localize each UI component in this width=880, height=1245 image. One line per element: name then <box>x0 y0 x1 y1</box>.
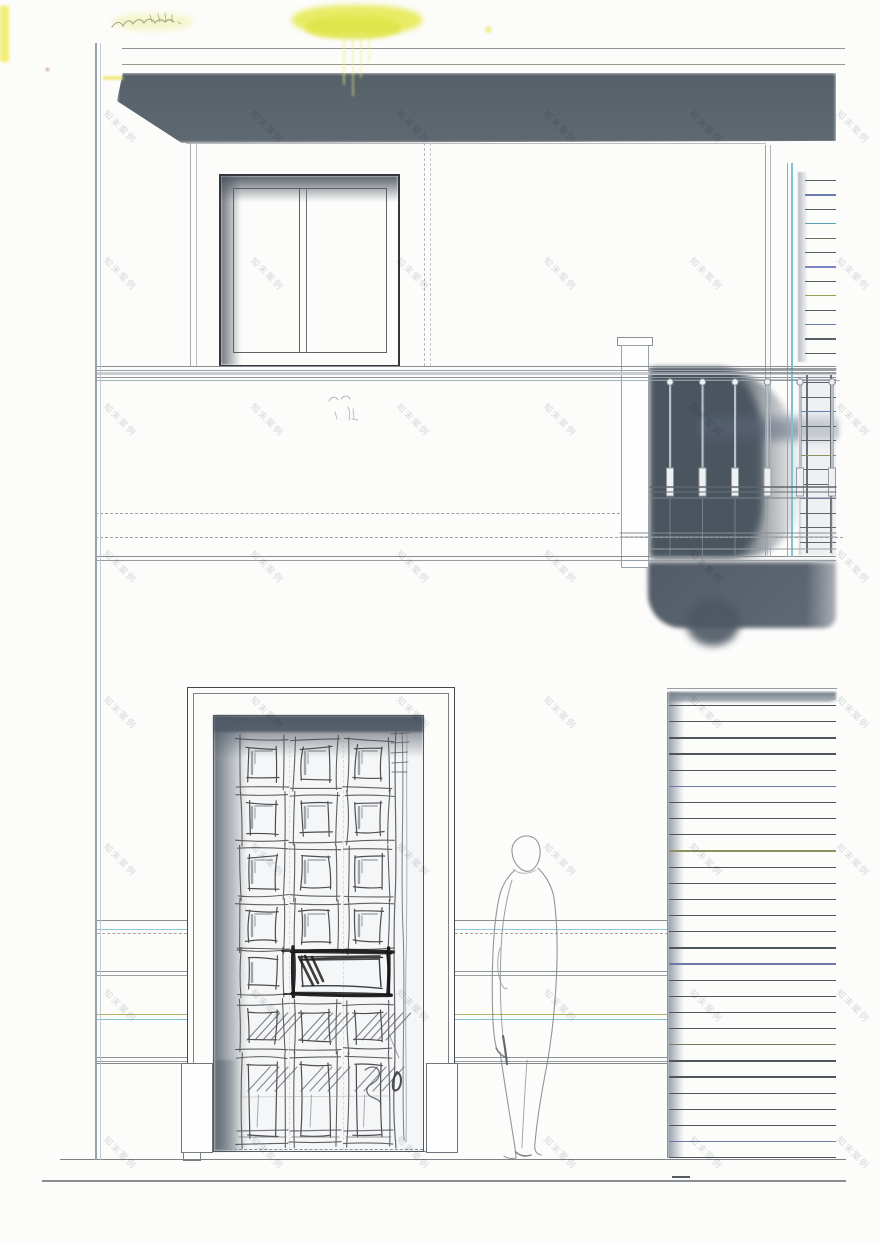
balcony-top-2 <box>95 370 836 371</box>
string-course <box>97 975 187 976</box>
rolling-shutter-slats-slat <box>669 980 836 981</box>
rolling-shutter-slats-slat <box>669 1012 836 1013</box>
louver-shutter-lower-slat <box>800 382 836 383</box>
rolling-shutter-slats-slat <box>669 931 836 932</box>
pilaster-right-2 <box>430 143 431 366</box>
watermark-text: 知末案例 <box>833 254 872 293</box>
rolling-shutter-slats-slat <box>669 899 836 900</box>
rolling-shutter-slats-slat <box>669 1109 836 1110</box>
pilaster-left-2 <box>196 143 197 366</box>
watermark-text: 知末案例 <box>101 400 140 439</box>
balcony-top-4 <box>95 380 840 381</box>
string-course-cyan <box>455 929 668 930</box>
louver-shutter-lower-slat <box>800 527 836 528</box>
watermark-text: 知末案例 <box>247 547 286 586</box>
figure-foot <box>516 1152 531 1156</box>
watermark-text: 知末案例 <box>247 400 286 439</box>
pilaster-right-1 <box>424 143 425 366</box>
under-balcony-fade <box>806 562 840 632</box>
figure-elbow <box>498 948 507 989</box>
rolling-shutter-slats-slat <box>669 705 836 706</box>
rolling-shutter-slats-slat <box>669 1157 836 1158</box>
wall-scribble-1 <box>329 396 350 401</box>
watermark-text: 知末案例 <box>101 840 140 879</box>
louver-shutter-upper-slat <box>805 310 836 311</box>
rolling-shutter-slats-slat <box>669 850 836 851</box>
facade-left-edge-2 <box>100 43 101 1160</box>
watermark-text: 知末案例 <box>540 1133 579 1172</box>
watermark-text: 知末案例 <box>101 107 140 146</box>
slab-bottom-1 <box>95 556 836 557</box>
figure-inner-arm <box>500 880 512 1060</box>
rolling-shutter-slats-slat <box>669 1141 836 1142</box>
red-speck <box>46 68 49 71</box>
rolling-shutter-slats-slat <box>669 786 836 787</box>
figure-left-side <box>492 870 515 1052</box>
pilaster-left-1 <box>190 143 191 366</box>
figure-hand-dark <box>503 1036 507 1064</box>
roof-line-2 <box>122 64 845 65</box>
watermark-text: 知末案例 <box>687 1133 726 1172</box>
ground-dash-dark <box>672 1176 690 1178</box>
louver-shutter-upper-slat <box>805 209 836 210</box>
balcony-top-1 <box>95 366 836 367</box>
balcony-recess-main <box>651 369 803 557</box>
string-course <box>455 971 668 972</box>
rolling-shutter-slats-slat <box>669 1125 836 1126</box>
cornice-band <box>117 73 836 143</box>
balcony-top-3 <box>95 377 836 378</box>
highlighter-streak <box>368 28 370 62</box>
balcony-top-band <box>95 372 836 375</box>
wall-corner-right-2 <box>770 145 771 557</box>
slab-bottom-2 <box>95 560 836 561</box>
watermark-text: 知末案例 <box>540 547 579 586</box>
watermark-text: 知末案例 <box>687 986 726 1025</box>
louver-shutter-lower-slat <box>800 542 836 543</box>
louver-shutter-upper-slat <box>805 338 836 339</box>
rolling-shutter-slats-slat <box>669 818 836 819</box>
louver-shutter-lower-slat <box>800 455 836 456</box>
louver-shutter-upper-slat <box>805 252 836 253</box>
rolling-shutter-slats-slat <box>669 834 836 835</box>
rolling-shutter-slats-slat <box>669 963 836 964</box>
figure-left-leg <box>500 1052 516 1158</box>
louver-shutter-upper-slat <box>805 353 836 354</box>
highlighter-streak <box>360 30 362 78</box>
under-balcony-bulge <box>686 598 740 646</box>
string-course-dash <box>455 933 668 934</box>
louver-shutter-lower-slat <box>800 440 836 441</box>
highlighter-streak <box>343 30 345 85</box>
watermark-text: 知末案例 <box>394 400 433 439</box>
shutter-left-frame <box>667 692 668 1158</box>
rolling-shutter-slats-slat <box>669 1044 836 1045</box>
pillar-shaft <box>621 345 649 568</box>
door-opening <box>213 715 424 1152</box>
watermark-text: 知末案例 <box>687 254 726 293</box>
facade-left-edge <box>95 43 97 1160</box>
wall-scribble-2 <box>335 407 358 420</box>
rolling-shutter-slats-slat <box>669 1076 836 1077</box>
louver-shutter-upper-slat <box>805 180 836 181</box>
string-course-cyan <box>97 929 187 930</box>
louver-shutter-upper-slat <box>805 194 836 195</box>
figure-inner-leg <box>522 1060 527 1148</box>
louver-shutter-upper-slat <box>805 324 836 325</box>
shutter-top-shade <box>669 692 836 702</box>
door-threshold-dash <box>214 1149 423 1150</box>
window-mullion-1 <box>299 188 300 353</box>
highlighter-tick <box>103 76 123 80</box>
shutter-top-line <box>667 688 837 689</box>
highlighter-dot <box>485 26 492 33</box>
string-course <box>455 1057 668 1058</box>
door-plinth-right <box>426 1063 458 1153</box>
louver-shutter-lower-slat <box>800 426 836 427</box>
rolling-shutter-slats-slat <box>669 1093 836 1094</box>
string-course-cyan <box>97 1019 187 1020</box>
louver-shutter-lower-slat <box>800 411 836 412</box>
figure-hand-dark-2 <box>496 1048 505 1057</box>
rolling-shutter-slats-slat <box>669 802 836 803</box>
highlighter-scribble-wash <box>112 13 194 31</box>
string-course-olive <box>97 1014 187 1015</box>
string-course <box>97 920 187 921</box>
watermark-text: 知末案例 <box>540 693 579 732</box>
hidden-slab-line-2 <box>95 537 843 538</box>
plinth-top <box>97 1063 182 1064</box>
downpipe-line-cyan <box>791 163 793 557</box>
watermark-text: 知末案例 <box>540 840 579 879</box>
downpipe-line <box>787 163 788 557</box>
string-course <box>97 971 187 972</box>
watermark-text: 知末案例 <box>101 1133 140 1172</box>
door-plinth-left <box>181 1063 213 1153</box>
figure-right-side <box>535 868 557 1155</box>
louver-shutter-lower-slat <box>800 469 836 470</box>
rolling-shutter-slats-slat <box>669 753 836 754</box>
rolling-shutter-slats-slat <box>669 996 836 997</box>
louver-shutter-lower-slat <box>800 397 836 398</box>
string-course-olive <box>455 1014 668 1015</box>
window-sash-frame <box>233 188 387 353</box>
watermark-text: 知末案例 <box>833 107 872 146</box>
watermark-text: 知末案例 <box>540 254 579 293</box>
rolling-shutter-slats-slat <box>669 947 836 948</box>
louver-shutter-lower-slat <box>800 484 836 485</box>
string-course-cyan <box>455 1019 668 1020</box>
rolling-shutter-slats-slat <box>669 721 836 722</box>
figure-shoulder <box>513 869 536 873</box>
window-mullion-2 <box>306 188 307 353</box>
rolling-shutter-slats-slat <box>669 867 836 868</box>
string-course <box>97 1057 187 1058</box>
rolling-shutter-slats-slat <box>669 915 836 916</box>
shutter-left-shade <box>668 692 684 1158</box>
plinth-top <box>458 1063 668 1064</box>
watermark-text: 知末案例 <box>833 400 872 439</box>
watermark-text: 知末案例 <box>101 254 140 293</box>
rolling-shutter-slats-slat <box>669 1060 836 1061</box>
soffit-line <box>186 143 766 144</box>
rolling-shutter-slats-slat <box>669 737 836 738</box>
louver-shutter-upper-slat <box>805 266 836 267</box>
highlighter-left-strip <box>0 6 9 62</box>
louver-shutter-upper-slat <box>805 223 836 224</box>
string-course-dash <box>97 933 187 934</box>
watermark-text: 知末案例 <box>394 547 433 586</box>
ground-line-1 <box>60 1159 846 1160</box>
string-course <box>455 975 668 976</box>
figure-head <box>512 836 540 871</box>
watermark-text: 知末案例 <box>687 840 726 879</box>
highlighter-streak <box>352 34 354 96</box>
rolling-shutter-slats-slat <box>669 883 836 884</box>
louver-shutter-lower-slat <box>800 513 836 514</box>
roof-line-1 <box>122 48 845 49</box>
door-col-guide <box>289 735 290 1150</box>
wall-corner-right-1 <box>765 145 766 557</box>
watermark-text: 知末案例 <box>101 547 140 586</box>
louver-shutter-upper-slat <box>805 295 836 296</box>
watermark-text: 知末案例 <box>101 693 140 732</box>
ground-line-2 <box>42 1180 846 1182</box>
hidden-slab-line <box>95 513 620 514</box>
watermark-text: 知末案例 <box>540 400 579 439</box>
rolling-shutter-slats-slat <box>669 770 836 771</box>
elevation-drawing-sheet: 知末案例知末案例知末案例知末案例知末案例知末案例知末案例知末案例知末案例知末案例… <box>0 0 880 1245</box>
door-col-guide <box>343 735 344 1150</box>
string-course <box>455 920 668 921</box>
string-course <box>97 1061 187 1062</box>
louver-shutter-upper-slat <box>805 238 836 239</box>
louver-shutter-upper-slat <box>805 281 836 282</box>
louver-shutter-lower-slat <box>800 498 836 499</box>
rolling-shutter-slats-slat <box>669 1028 836 1029</box>
string-course <box>455 1061 668 1062</box>
